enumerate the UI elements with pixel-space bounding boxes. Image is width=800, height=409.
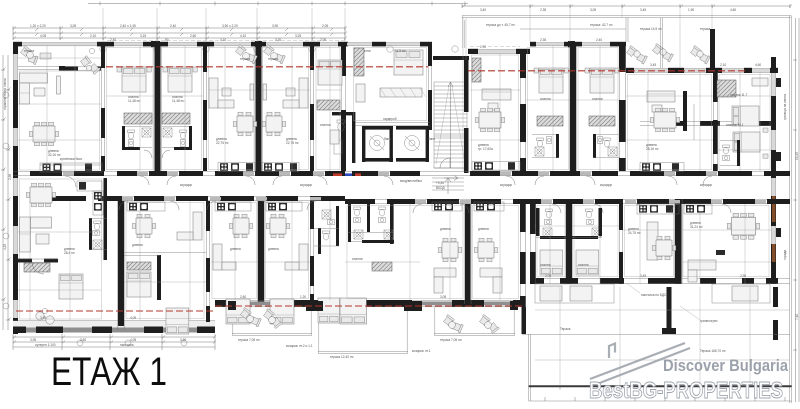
svg-text:тераса 14,9 m²: тераса 14,9 m² bbox=[640, 27, 662, 31]
svg-text:коридор: коридор bbox=[300, 183, 312, 187]
svg-text:коридор: коридор bbox=[500, 183, 512, 187]
svg-text:тераса: тераса bbox=[700, 27, 710, 31]
svg-text:3,45: 3,45 bbox=[640, 274, 646, 278]
svg-text:2,90: 2,90 bbox=[740, 274, 746, 278]
svg-text:спалня: спалня bbox=[352, 257, 363, 261]
svg-text:настилка: настилка bbox=[120, 343, 134, 347]
svg-text:2,40 х 1,45: 2,40 х 1,45 bbox=[120, 24, 136, 28]
svg-text:BestBG-PROPERTIES: BestBG-PROPERTIES bbox=[589, 377, 783, 403]
svg-text:Тераса: Тераса bbox=[560, 327, 571, 331]
svg-text:4,05: 4,05 bbox=[40, 34, 46, 38]
svg-text:тр. 17,60а: тр. 17,60а bbox=[478, 147, 493, 151]
svg-text:2,05: 2,05 bbox=[545, 274, 551, 278]
svg-text:32,16 m²: 32,16 m² bbox=[48, 153, 61, 157]
svg-text:3,05: 3,05 bbox=[70, 24, 76, 28]
svg-text:3,90: 3,90 bbox=[272, 24, 278, 28]
svg-text:22,75 m²: 22,75 m² bbox=[286, 141, 299, 145]
svg-text:90: 90 bbox=[165, 38, 169, 42]
svg-text:11,48 m²: 11,48 m² bbox=[172, 99, 184, 103]
svg-text:тераса 7,05 m²: тераса 7,05 m² bbox=[238, 338, 260, 342]
svg-text:3,95: 3,95 bbox=[30, 338, 36, 342]
svg-text:4,25: 4,25 bbox=[3, 244, 7, 250]
svg-text:3,20: 3,20 bbox=[275, 38, 281, 42]
svg-text:24,75 m²: 24,75 m² bbox=[628, 231, 641, 235]
svg-text:+0,40: +0,40 bbox=[436, 181, 444, 185]
svg-text:дневна: дневна bbox=[440, 227, 451, 231]
svg-text:28,16 m²: 28,16 m² bbox=[646, 147, 659, 151]
svg-text:3,60: 3,60 bbox=[80, 338, 86, 342]
svg-text:козирка: ет.1: козирка: ет.1 bbox=[412, 349, 431, 353]
svg-text:коридор: коридор bbox=[700, 183, 712, 187]
svg-text:2,10: 2,10 bbox=[90, 34, 96, 38]
svg-text:2,90: 2,90 bbox=[8, 174, 12, 180]
svg-text:4,60: 4,60 bbox=[730, 8, 736, 12]
svg-text:вход/вестибюл: вход/вестибюл bbox=[400, 179, 422, 183]
svg-text:козирка: ет.2 и 1:1: козирка: ет.2 и 1:1 bbox=[286, 344, 313, 348]
svg-text:спалня: спалня bbox=[320, 123, 331, 127]
svg-text:спалня: спалня bbox=[592, 97, 603, 101]
svg-text:2,60: 2,60 bbox=[190, 34, 196, 38]
svg-text:ВХОД: ВХОД bbox=[436, 186, 445, 190]
svg-text:спалня: спалня bbox=[578, 263, 589, 267]
svg-text:2,10: 2,10 bbox=[720, 63, 726, 67]
svg-text:спалня 11,7: спалня 11,7 bbox=[730, 93, 748, 97]
svg-text:баня: баня bbox=[384, 137, 391, 141]
svg-text:19,45: 19,45 bbox=[795, 152, 799, 160]
svg-text:тераса 7,05 m²: тераса 7,05 m² bbox=[440, 338, 462, 342]
svg-text:2,40: 2,40 bbox=[596, 38, 602, 42]
svg-text:4,60: 4,60 bbox=[755, 63, 761, 67]
svg-text:дневна: дневна bbox=[132, 243, 143, 247]
svg-text:коридор: коридор bbox=[600, 183, 612, 187]
svg-text:2,35: 2,35 bbox=[540, 8, 546, 12]
svg-text:4,10: 4,10 bbox=[240, 34, 246, 38]
svg-text:тераса: тераса bbox=[240, 57, 250, 61]
svg-text:2,40: 2,40 bbox=[110, 38, 116, 42]
svg-text:1,20 х 2,20: 1,20 х 2,20 bbox=[30, 24, 46, 28]
svg-text:Тераса 165,70 m²: Тераса 165,70 m² bbox=[700, 349, 726, 353]
svg-text:баня: баня bbox=[428, 137, 435, 141]
svg-text:3,15: 3,15 bbox=[140, 34, 146, 38]
svg-text:ЕТАЖ 1: ЕТАЖ 1 bbox=[51, 350, 167, 394]
svg-text:гранитогрес: гранитогрес bbox=[700, 319, 718, 323]
svg-text:28,4 m²: 28,4 m² bbox=[64, 251, 75, 255]
svg-text:2,35: 2,35 bbox=[540, 38, 546, 42]
svg-text:4,05: 4,05 bbox=[130, 338, 136, 342]
svg-text:тераса: тераса bbox=[24, 49, 34, 53]
svg-text:2,40: 2,40 bbox=[170, 24, 176, 28]
svg-text:коридор: коридор bbox=[180, 183, 192, 187]
svg-text:тераса: тераса bbox=[268, 57, 278, 61]
svg-text:2,90: 2,90 bbox=[480, 45, 486, 49]
svg-text:дневна: дневна bbox=[230, 247, 241, 251]
svg-text:Discover Bulgaria: Discover Bulgaria bbox=[663, 357, 789, 375]
svg-text:31,24 m²: 31,24 m² bbox=[690, 225, 703, 229]
svg-text:4,10: 4,10 bbox=[220, 38, 226, 42]
svg-text:граница на имота: граница на имота bbox=[783, 94, 787, 120]
svg-text:11,9 m²: 11,9 m² bbox=[395, 49, 406, 53]
svg-text:2,05: 2,05 bbox=[320, 38, 326, 42]
svg-text:ограда: ограда bbox=[783, 250, 787, 260]
svg-text:3,05: 3,05 bbox=[590, 8, 596, 12]
svg-text:спалня 10,1: спалня 10,1 bbox=[726, 123, 744, 127]
svg-text:настилка по БДС: настилка по БДС bbox=[641, 293, 667, 297]
svg-text:3,45: 3,45 bbox=[650, 63, 656, 67]
svg-text:1,90: 1,90 bbox=[688, 8, 694, 12]
svg-text:3,25: 3,25 bbox=[295, 34, 301, 38]
svg-text:тераса: 42,7 m²: тераса: 42,7 m² bbox=[590, 23, 613, 27]
svg-text:тераса 12,40 m²: тераса 12,40 m² bbox=[330, 355, 354, 359]
svg-text:спалня: спалня bbox=[540, 263, 551, 267]
svg-text:3,45: 3,45 bbox=[640, 8, 646, 12]
svg-text:кухненски бокс: кухненски бокс bbox=[60, 157, 83, 161]
svg-text:дневна: дневна bbox=[478, 227, 489, 231]
svg-text:ограничителна линия: ограничителна линия bbox=[3, 78, 7, 110]
svg-text:3,40: 3,40 bbox=[480, 8, 486, 12]
svg-text:тераса до т. 45,7 m²: тераса до т. 45,7 m² bbox=[486, 23, 515, 27]
svg-text:3,95: 3,95 bbox=[40, 316, 46, 320]
svg-text:22,75 m²: 22,75 m² bbox=[216, 141, 229, 145]
svg-text:2,05: 2,05 bbox=[322, 24, 328, 28]
svg-text:спалня: спалня bbox=[540, 97, 551, 101]
svg-text:сутерен 1:100: сутерен 1:100 bbox=[35, 343, 56, 347]
svg-text:3,90 х 2,20: 3,90 х 2,20 bbox=[222, 24, 238, 28]
svg-text:11,48 m²: 11,48 m² bbox=[128, 99, 140, 103]
svg-text:3,90: 3,90 bbox=[180, 338, 186, 342]
svg-text:7,10: 7,10 bbox=[795, 314, 799, 320]
svg-text:4,05: 4,05 bbox=[130, 316, 136, 320]
svg-text:дневна: дневна bbox=[268, 247, 279, 251]
